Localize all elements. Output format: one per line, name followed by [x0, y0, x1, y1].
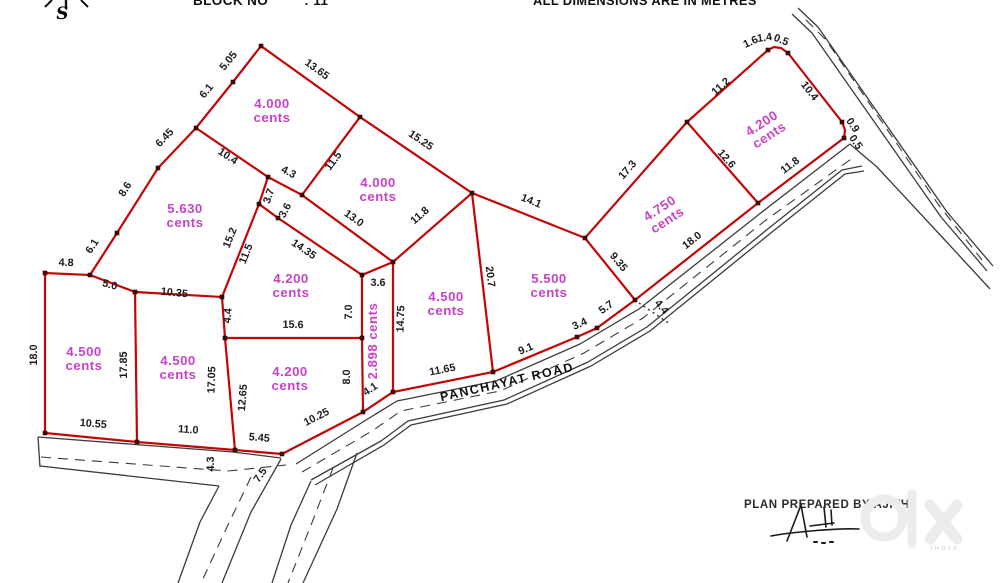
plot-area-label: 4.200cents [273, 271, 310, 300]
dimension-label: 1.4 [756, 31, 773, 45]
road-centerline [41, 457, 286, 471]
dimension-label: 11.5 [237, 242, 256, 265]
boundary-vertex [231, 80, 236, 85]
dimension-label: 6.1 [83, 237, 101, 256]
dimension-label: 10.55 [79, 417, 107, 431]
boundary-vertex [300, 193, 305, 198]
road-edge-line [850, 144, 990, 289]
road-edge-line [38, 437, 40, 467]
boundary-vertex [135, 440, 140, 445]
boundary-vertex [491, 370, 496, 375]
plot-area-label: 5.500cents [531, 271, 568, 300]
boundary-vertex [43, 431, 48, 436]
plot-area-label: 4.200cents [742, 107, 789, 151]
road-edge-line [792, 14, 987, 271]
block-number-value: : 11 [304, 0, 328, 8]
dimension-label: 15.6 [282, 319, 303, 331]
dimension-label: 11.8 [408, 205, 431, 227]
dimension-label: 10.4 [216, 146, 240, 168]
plot-area-label: 2.898 cents [365, 303, 380, 380]
dimension-label: 6.45 [153, 126, 176, 150]
boundary-vertex [43, 271, 48, 276]
plot-area-label: 4.500cents [66, 344, 103, 373]
road-edge-line [272, 481, 311, 583]
road-edge-line [38, 437, 281, 458]
dimension-label: 0.5 [846, 133, 864, 152]
dimension-label: 15.25 [406, 128, 435, 153]
plot-boundary-line [45, 273, 635, 454]
plot-plan-drawing: 5.056.113.6515.2510.44.311.56.458.66.14.… [0, 0, 1000, 583]
boundary-vertex [194, 126, 199, 131]
dimension-label: 14.1 [519, 192, 543, 211]
plot-area-label: 4.000cents [360, 175, 397, 204]
boundary-vertex [280, 452, 285, 457]
dimension-label: 5.0 [101, 277, 119, 292]
dimension-label: 11.5 [323, 149, 345, 173]
block-number-title: BLOCK NO: 11 [193, 0, 328, 8]
boundary-vertex [233, 448, 238, 453]
dimension-label: 17.85 [118, 351, 130, 378]
boundary-vertex [391, 390, 396, 395]
boundary-vertex [266, 175, 271, 180]
boundary-vertex [575, 335, 580, 340]
dimension-label: 5.45 [248, 431, 270, 445]
road-edge-line [178, 486, 219, 583]
road-centerline [806, 20, 982, 260]
dimension-label: 5.05 [217, 49, 240, 73]
boundary-vertex [786, 51, 791, 56]
boundary-vertex [756, 201, 761, 206]
dimension-label: 11.65 [428, 362, 456, 379]
dimension-label: 4.3 [279, 164, 298, 182]
dimension-label: 4.3 [205, 456, 217, 471]
dimension-label: 15.2 [221, 226, 240, 250]
boundary-vertex [583, 236, 588, 241]
boundary-vertex [842, 136, 847, 141]
prepared-by-text: PLAN PREPARED BY AJITH [744, 499, 910, 511]
dimension-label: 8.0 [341, 369, 353, 384]
compass-indicator: S [38, 0, 98, 34]
boundary-vertex [360, 273, 365, 278]
dimension-label: 17.3 [616, 158, 639, 182]
dimension-label: 6.1 [197, 82, 216, 101]
boundary-vertex [133, 290, 138, 295]
boundary-vertex [766, 48, 771, 53]
dimension-label: 4.4 [652, 297, 671, 316]
dimension-label: 20.7 [483, 265, 497, 287]
plot-area-label: 5.630cents [167, 201, 204, 230]
dimension-label: 11.2 [709, 75, 732, 98]
boundary-vertex [595, 326, 600, 331]
dimension-label: 10.4 [798, 79, 820, 103]
plot-area-label: 4.750cents [640, 192, 687, 236]
boundary-vertex [156, 166, 161, 171]
dimensions-note: ALL DIMENSIONS ARE IN METRES [533, 0, 757, 8]
survey-plan-page: 5.056.113.6515.2510.44.311.56.458.66.14.… [0, 0, 1000, 583]
plot-area-label: 4.500cents [160, 353, 197, 382]
boundary-vertex [88, 273, 93, 278]
plot-area-label: 4.500cents [428, 289, 465, 318]
dimension-label: 14.75 [395, 305, 408, 332]
road-edge-line [40, 466, 219, 486]
plot-area-label: 4.000cents [254, 96, 291, 125]
dimension-label: 3.6 [370, 277, 385, 289]
dimension-label: 10.35 [160, 286, 188, 301]
dimension-label: 17.05 [206, 366, 219, 393]
boundary-vertex [470, 191, 475, 196]
plot-area-label: 4.200cents [272, 364, 309, 393]
boundary-vertex [223, 336, 228, 341]
dimension-label: 12.65 [236, 384, 250, 412]
dimension-label: 0.9 [843, 116, 861, 135]
dimension-label: 10.25 [302, 406, 332, 429]
dimension-label: 3.4 [570, 316, 589, 333]
road-edge-line [798, 8, 993, 266]
boundary-vertex [633, 298, 638, 303]
dimension-label: 7.0 [343, 304, 355, 319]
dimension-label: 18.0 [28, 344, 40, 365]
dimension-label: 5.7 [597, 298, 616, 317]
boundary-vertex [685, 120, 690, 125]
boundary-vertex [361, 410, 366, 415]
dimension-label: 14.35 [289, 237, 318, 262]
dimension-label: 4.8 [58, 257, 73, 270]
block-number-label: BLOCK NO [193, 0, 268, 8]
dimension-label: 8.6 [116, 180, 134, 199]
boundary-vertex [360, 336, 365, 341]
dimension-label: 4.4 [221, 308, 234, 324]
road-edge-line [303, 453, 357, 583]
boundary-vertex [220, 295, 225, 300]
boundary-vertex [115, 231, 120, 236]
boundary-vertex [391, 260, 396, 265]
dimension-label: 11.0 [178, 423, 199, 436]
boundary-vertex [259, 44, 264, 49]
boundary-vertex [257, 202, 262, 207]
boundary-vertex [358, 115, 363, 120]
plot-boundary-line [135, 292, 137, 442]
